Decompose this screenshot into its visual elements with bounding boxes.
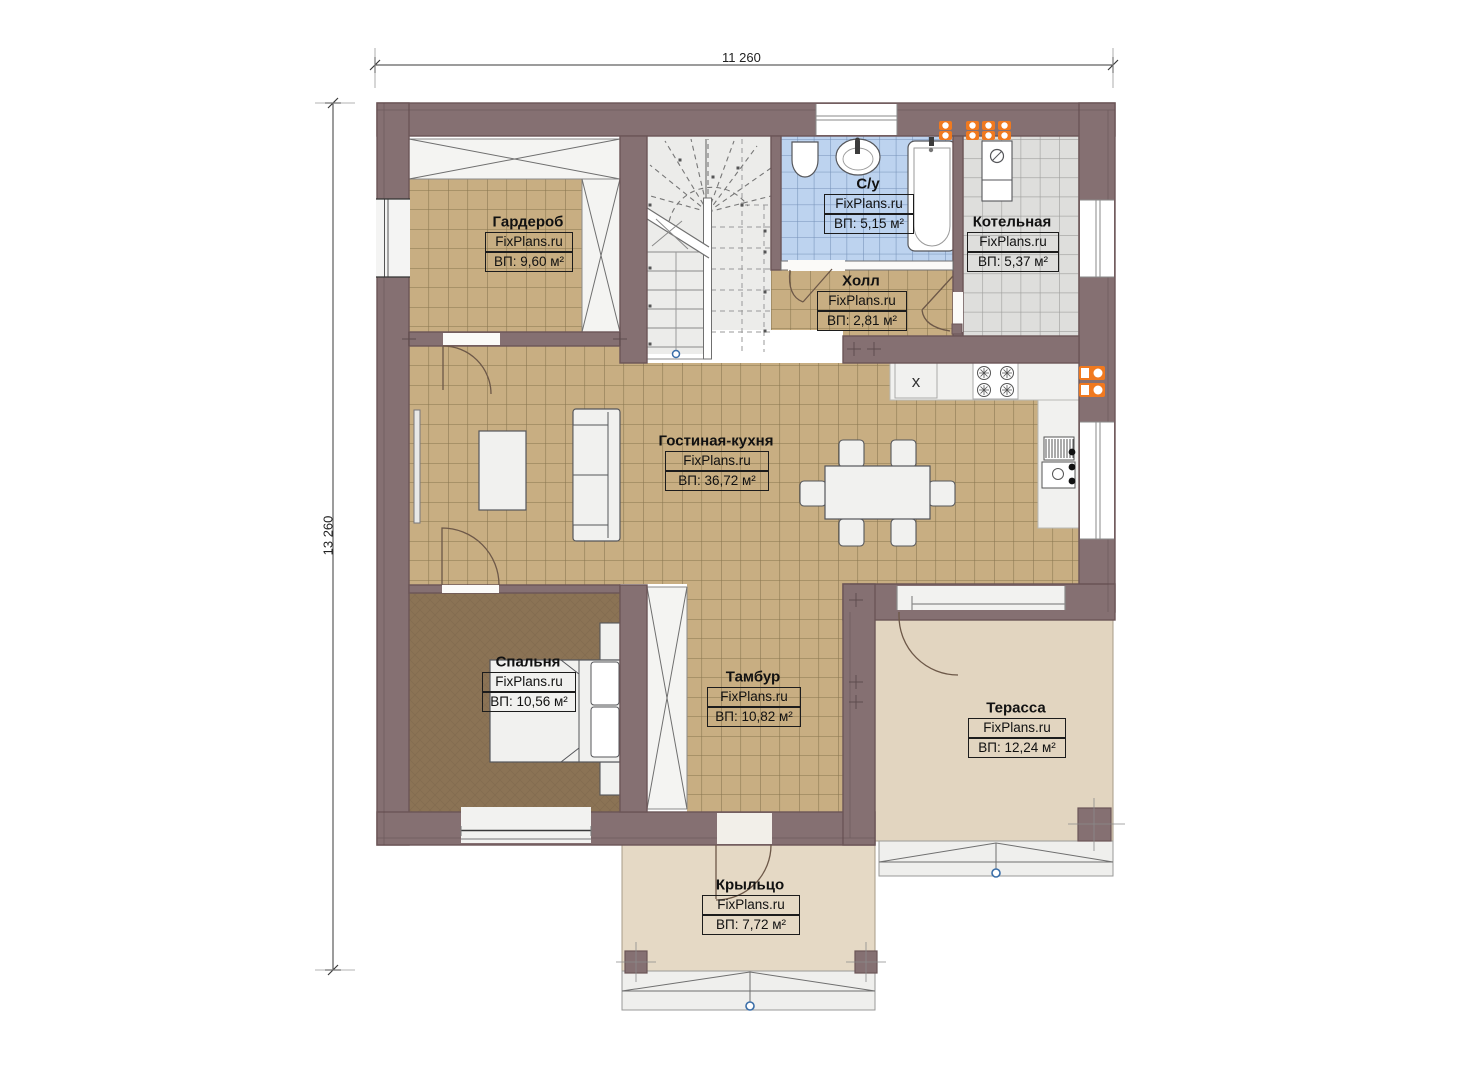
svg-text:x: x (912, 372, 921, 391)
